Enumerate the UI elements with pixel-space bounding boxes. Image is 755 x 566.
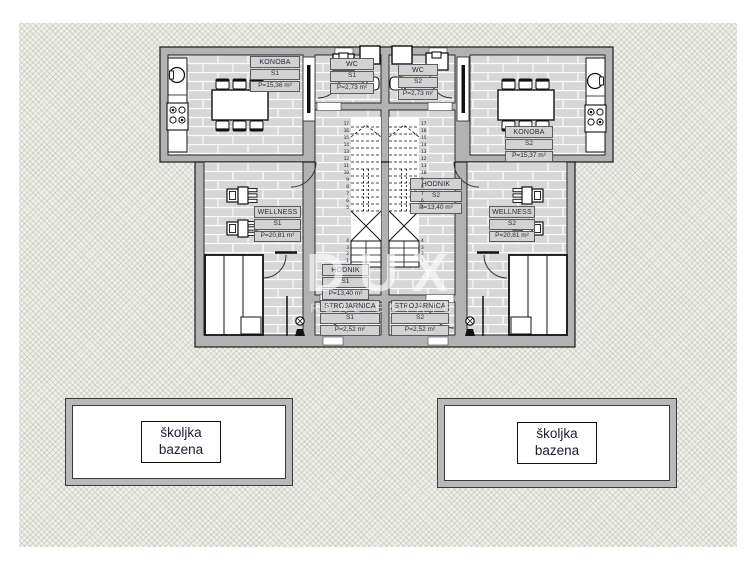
shaft-right	[392, 46, 412, 64]
stove-icon	[585, 105, 606, 132]
stair-step-number: 4	[421, 240, 429, 245]
stair-step-number: 14	[341, 144, 349, 149]
table	[498, 90, 554, 120]
room-unit: S1	[250, 69, 300, 80]
stair-step-number: 17	[421, 123, 429, 128]
room-area: P=2,52 m²	[391, 325, 449, 336]
stair-step-number: 4	[341, 240, 349, 245]
stair-step-number: 11	[421, 165, 429, 170]
stair-step-number: 3	[341, 247, 349, 252]
stair-step-number: 13	[421, 151, 429, 156]
stair-step-number: 9	[341, 179, 349, 184]
stair-step-number: 2	[341, 253, 349, 258]
room-label-wc-s1: WC S1 P=2,73 m²	[330, 58, 374, 94]
room-area: P=15,37 m²	[505, 151, 553, 162]
wardrobe-right	[509, 255, 567, 335]
room-area: P=15,36 m²	[250, 81, 300, 92]
room-area: P=13,40 m²	[322, 289, 369, 300]
stair-step-number: 13	[341, 151, 349, 156]
room-label-strojarnica-s2: STROJARNICA S2 P=2,52 m²	[391, 300, 449, 336]
sink-icon	[588, 74, 604, 89]
room-name: WELLNESS	[254, 206, 301, 218]
room-unit: S2	[505, 139, 553, 150]
stair-step-number: 11	[341, 165, 349, 170]
stair-step-number: 5	[421, 207, 429, 212]
gym-machine-icon	[227, 187, 257, 204]
stair-step-number: 15	[341, 137, 349, 142]
pool-label-line2: bazena	[524, 443, 590, 460]
room-name: STROJARNICA	[320, 300, 380, 312]
room-area: P=13,40 m²	[410, 203, 462, 214]
room-label-wellness-s2: WELLNESS S2 P=20,81 m²	[489, 206, 535, 242]
sink-icon	[170, 68, 185, 83]
room-label-hodnik-s2: HODNIK S2 P=13,40 m²	[410, 178, 462, 214]
room-label-konoba-s2: KONOBA S2 P=15,37 m²	[505, 126, 553, 162]
stair-step-number: 8	[421, 186, 429, 191]
stove-icon	[167, 103, 188, 130]
pool-label-line2: bazena	[148, 442, 214, 459]
room-area: P=2,52 m²	[320, 325, 380, 336]
stair-step-number: 1	[421, 260, 429, 265]
stair-step-number: 12	[421, 158, 429, 163]
room-name: KONOBA	[505, 126, 553, 138]
room-name: WELLNESS	[489, 206, 535, 218]
stair-step-number: 17	[341, 123, 349, 128]
room-area: P=2,73 m²	[398, 89, 438, 100]
wardrobe-left	[205, 255, 263, 335]
pool-right-label: školjka bazena	[517, 422, 597, 464]
gym-machine-icon	[227, 220, 257, 237]
stair-step-number: 1	[341, 260, 349, 265]
room-unit: S2	[410, 191, 462, 202]
room-name: WC	[398, 64, 438, 76]
room-name: WC	[330, 58, 374, 70]
room-name: HODNIK	[410, 178, 462, 190]
room-name: STROJARNICA	[391, 300, 449, 312]
room-unit: S1	[254, 219, 301, 230]
room-label-wellness-s1: WELLNESS S1 P=20,81 m²	[254, 206, 301, 242]
stair-step-number: 5	[341, 207, 349, 212]
stair-step-number: 12	[341, 158, 349, 163]
stair-numbers-left-upper: 171615141312111098765	[341, 123, 349, 212]
room-area: P=20,81 m²	[489, 231, 535, 242]
dining-set-right	[498, 79, 554, 131]
stair-step-number: 10	[421, 172, 429, 177]
room-unit: S2	[398, 77, 438, 88]
stair-numbers-left-lower: 4321	[341, 240, 349, 264]
stair-step-number: 7	[421, 193, 429, 198]
kitchen-right	[585, 58, 606, 152]
room-label-konoba-s1: KONOBA S1 P=15,36 m²	[250, 56, 300, 92]
floor-plan-page: KONOBA S1 P=15,36 m² WC S1 P=2,73 m² WC …	[0, 0, 755, 566]
room-unit: S1	[322, 277, 369, 288]
table	[212, 90, 268, 120]
room-unit: S1	[320, 313, 380, 324]
stair-step-number: 14	[421, 144, 429, 149]
stair-step-number: 6	[421, 200, 429, 205]
room-label-hodnik-s1: HODNIK S1 P=13,40 m²	[322, 264, 369, 300]
pool-label-line1: školjka	[524, 426, 590, 443]
room-label-strojarnica-s1: STROJARNICA S1 P=2,52 m²	[320, 300, 380, 336]
stair-step-number: 3	[421, 247, 429, 252]
room-label-wc-s2: WC S2 P=2,73 m²	[398, 64, 438, 100]
stair-step-number: 7	[341, 193, 349, 198]
room-area: P=20,81 m²	[254, 231, 301, 242]
stair-numbers-right-upper: 171615141312111098765	[421, 123, 429, 212]
stair-step-number: 15	[421, 137, 429, 142]
room-area: P=2,73 m²	[330, 83, 374, 94]
stair-step-number: 2	[421, 253, 429, 258]
room-name: KONOBA	[250, 56, 300, 68]
stair-numbers-right-lower: 4321	[421, 240, 429, 264]
stair-step-number: 6	[341, 200, 349, 205]
stair-step-number: 9	[421, 179, 429, 184]
room-name: HODNIK	[322, 264, 369, 276]
stair-step-number: 10	[341, 172, 349, 177]
kitchen-left	[167, 58, 188, 152]
staircase-left	[351, 117, 381, 267]
pool-left-label: školjka bazena	[141, 421, 221, 463]
room-unit: S2	[489, 219, 535, 230]
room-unit: S1	[330, 71, 374, 82]
stair-step-number: 8	[341, 186, 349, 191]
stair-step-number: 16	[341, 130, 349, 135]
room-unit: S2	[391, 313, 449, 324]
gym-machine-icon	[513, 187, 543, 204]
stair-step-number: 16	[421, 130, 429, 135]
pool-label-line1: školjka	[148, 425, 214, 442]
